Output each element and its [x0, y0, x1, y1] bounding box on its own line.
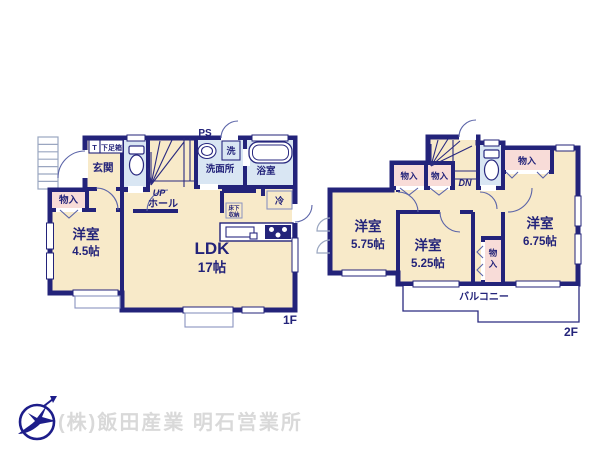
- label-2f-closet-b: 物入: [431, 171, 449, 181]
- floor-plan-2f: DN 物入 物入 物入 物 入 洋室 5.75帖 洋室 5.25帖 洋室 6.7…: [317, 120, 581, 339]
- label-fridge: 冷: [275, 195, 284, 206]
- label-bathroom: 浴室: [256, 165, 276, 177]
- label-2f-closet-a: 物入: [400, 171, 418, 181]
- label-entrance: 玄関: [93, 161, 114, 174]
- label-2f-bedroom2: 洋室: [415, 237, 442, 253]
- bathtub-icon: [249, 142, 292, 163]
- entry-steps-icon: [38, 137, 58, 189]
- label-underfloor-2: 収納: [228, 211, 240, 219]
- label-2f-bedroom3: 洋室: [527, 215, 555, 231]
- label-ldk-size: 17帖: [198, 259, 227, 275]
- 2f-toilet-icon: [484, 150, 499, 180]
- label-dn: DN: [459, 178, 472, 188]
- label-1f-closet: 物入: [59, 194, 79, 206]
- label-floor-1f: 1F: [283, 313, 297, 327]
- kitchen-counter-icon: [220, 223, 293, 241]
- label-up: UP: [153, 188, 166, 198]
- 1f-toilet-icon: [129, 146, 144, 175]
- label-2f-bedroom1: 洋室: [355, 218, 382, 234]
- floor-plan-1f: PS T 下足箱 玄関 洗 洗面所 浴室 UP ホール 冷 床下 収納 物入 洋…: [38, 121, 312, 327]
- floorplan-page: PS T 下足箱 玄関 洗 洗面所 浴室 UP ホール 冷 床下 収納 物入 洋…: [0, 0, 600, 450]
- company-name-text: (株)飯田産業 明石営業所: [58, 406, 578, 435]
- stove-icon: [265, 225, 291, 239]
- sink-icon: [198, 144, 216, 159]
- label-2f-bedroom1-size: 5.75帖: [351, 237, 385, 251]
- label-2f-bedroom2-size: 5.25帖: [411, 256, 445, 270]
- label-2f-closet-vert-1: 物: [489, 248, 498, 258]
- label-1f-bedroom-size: 4.5帖: [72, 244, 100, 258]
- label-ps: PS: [198, 128, 212, 139]
- label-1f-bedroom: 洋室: [73, 226, 100, 242]
- label-shoe-box: 下足箱: [101, 143, 122, 152]
- label-washroom: 洗面所: [206, 163, 235, 175]
- label-floor-2f: 2F: [564, 325, 578, 339]
- label-2f-bedroom3-size: 6.75帖: [523, 234, 557, 248]
- label-hall: ホール: [148, 198, 178, 210]
- label-2f-closet-vert-2: 入: [488, 259, 498, 269]
- label-underfloor-1: 床下: [228, 204, 240, 212]
- label-balcony: バルコニー: [459, 291, 509, 303]
- bird-logo-icon: [18, 405, 56, 434]
- label-2f-closet-c: 物入: [518, 155, 536, 166]
- company-logo: [18, 396, 57, 439]
- label-shoe-t: T: [92, 143, 97, 152]
- floorplan-canvas: PS T 下足箱 玄関 洗 洗面所 浴室 UP ホール 冷 床下 収納 物入 洋…: [0, 0, 600, 450]
- label-washer: 洗: [226, 145, 235, 156]
- logo-arrow-icon: [44, 399, 53, 406]
- label-ldk: LDK: [195, 239, 231, 258]
